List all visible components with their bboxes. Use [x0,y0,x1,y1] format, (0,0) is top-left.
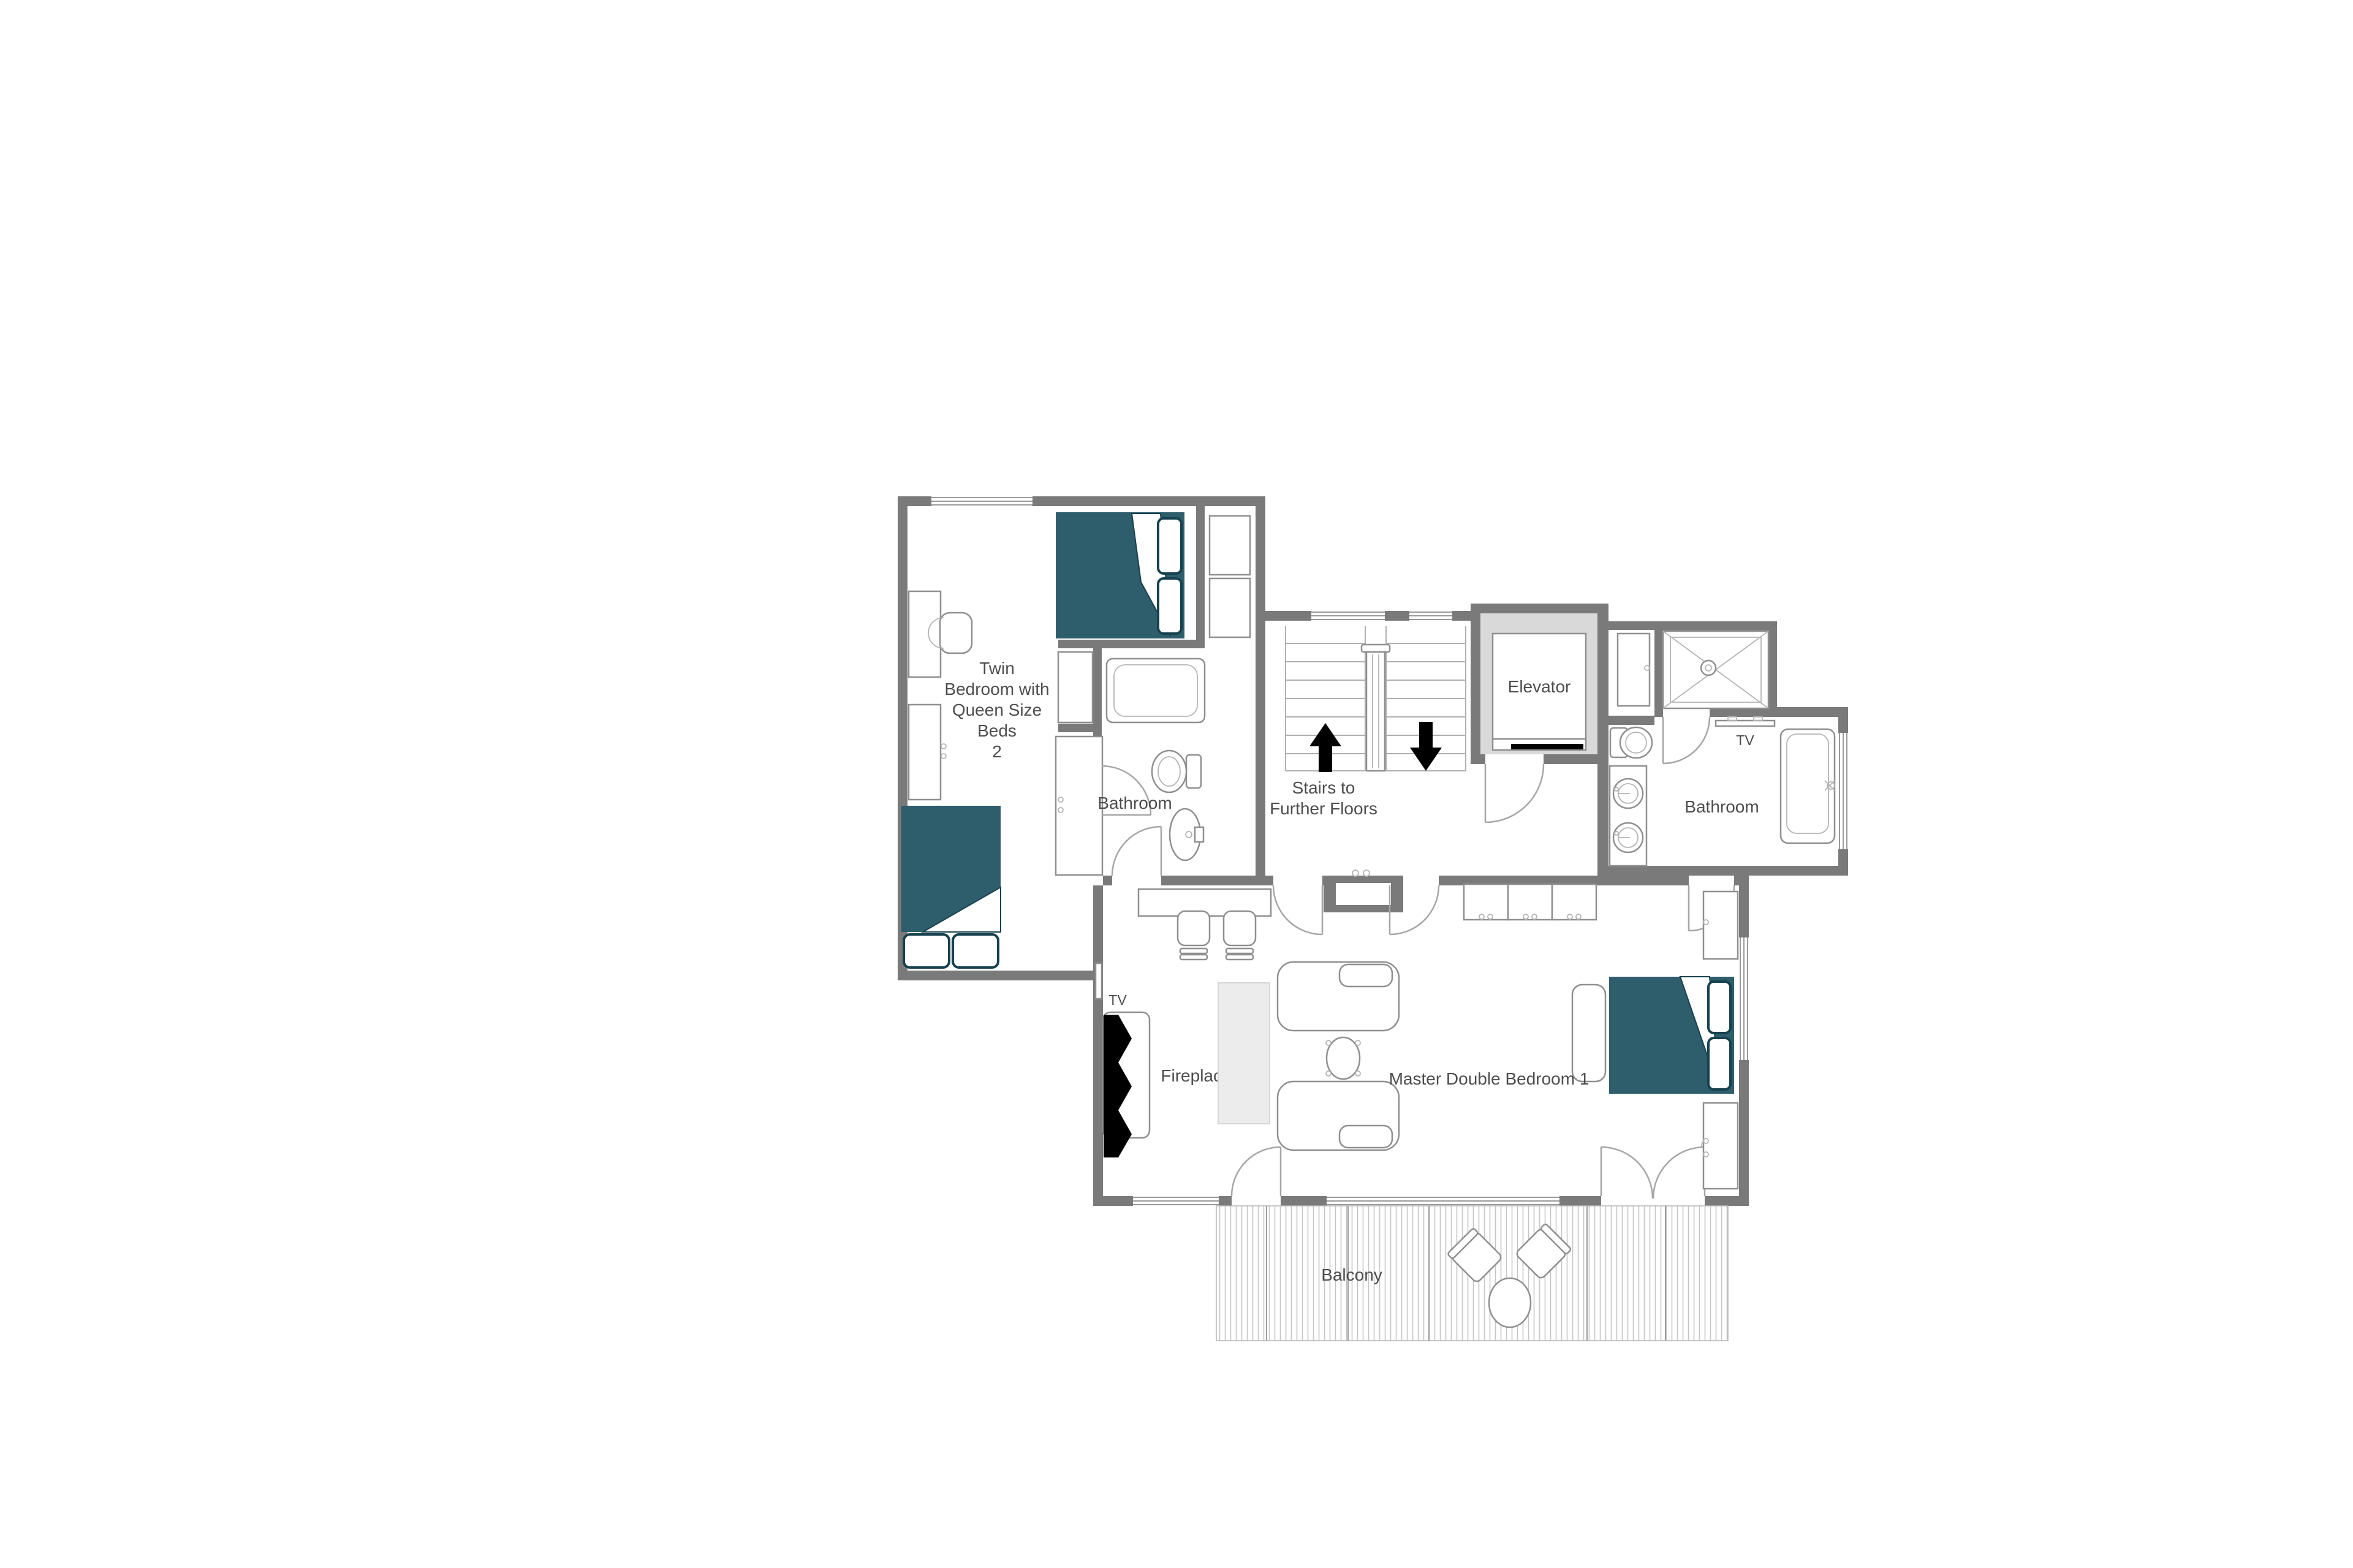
window-icon [1739,937,1749,1060]
twin-bathroom-label: Bathroom [1097,793,1172,812]
toilet-icon [1152,751,1201,792]
bench-icon [1572,985,1605,1081]
dresser-icon [909,705,946,800]
rug [1218,983,1270,1124]
nightstand-icon [1703,892,1738,959]
twin-bedroom-label: Twin Bedroom with Queen Size Beds 2 [944,659,1049,761]
stairs-rail-icon [1362,645,1390,771]
floor-plan: Twin Bedroom with Queen Size Beds 2 [0,0,2353,1568]
built-in-wardrobes-icon [1464,884,1596,920]
window-icon [1311,611,1385,621]
hall-door-left-icon [1273,885,1322,934]
balcony-single-door-icon [1232,1147,1281,1196]
stairwell: Stairs to Further Floors [1265,611,1471,818]
floor-plan-page: Twin Bedroom with Queen Size Beds 2 [0,0,2353,1568]
stairs-label: Stairs to Further Floors [1270,778,1377,818]
window-icon [1409,611,1452,621]
stairs-down-arrow-icon [1410,722,1442,771]
toilet-icon [1610,727,1652,758]
svg-text:Beds: Beds [977,721,1017,740]
chair-icon [1178,911,1210,960]
bathtub-icon [1781,729,1835,843]
master-bathroom-label: Bathroom [1684,797,1759,816]
queen-bed-icon [901,806,1001,968]
stairs-up-arrow-icon [1309,723,1341,772]
master-bedroom-label: Master Double Bedroom 1 [1389,1069,1590,1088]
svg-text:2: 2 [992,742,1002,761]
twin-bedroom-door-icon [1112,827,1161,876]
window-icon [931,496,1033,506]
sofa-icon [1278,962,1399,1031]
chimney-icon [1324,870,1403,912]
closet-doors-icon [1608,621,1654,706]
bathroom-tv-label: TV [1736,732,1754,748]
twin-bathroom: Bathroom [1056,648,1205,876]
shower-icon [1663,631,1768,708]
queen-bed-icon [1056,512,1184,638]
svg-text:Bedroom with: Bedroom with [944,680,1049,699]
svg-text:Queen Size: Queen Size [952,700,1042,719]
balcony-label: Balcony [1321,1265,1382,1284]
svg-text:Twin: Twin [979,659,1015,678]
tv-icon [1096,963,1102,999]
sofa-icon [1278,1081,1399,1150]
elevator-hall-door-icon [1485,764,1544,822]
stairs-icon [1286,626,1466,772]
window-icon [1327,1196,1559,1206]
window-icon [1838,733,1848,849]
balcony-table-icon [1489,1278,1531,1327]
stairwell-walls [1265,611,1471,621]
svg-text:Further Floors: Further Floors [1270,799,1377,818]
tv-icon [1716,717,1775,726]
double-sink-icon [1610,766,1646,866]
desk-icon [909,591,941,677]
balcony: Balcony [1216,1206,1728,1341]
svg-text:Stairs to: Stairs to [1292,778,1355,797]
window-icon [1133,1196,1219,1206]
round-table-icon [1326,1037,1360,1079]
double-bed-icon [1609,977,1734,1094]
master-tv-label: TV [1108,992,1127,1008]
sink-icon [1170,809,1203,860]
closet-doors-icon [1210,516,1250,637]
chair-icon [1224,911,1256,960]
hall [1265,870,1749,934]
master-bedroom: TV Fireplace [1093,885,1749,1206]
dresser-icon [1703,1103,1738,1189]
elevator-label: Elevator [1508,677,1571,696]
fireplace-icon [1103,1012,1150,1157]
bathtub-icon [1107,659,1205,722]
master-bathroom-door-icon [1663,717,1710,763]
french-doors-icon [1601,1142,1708,1199]
